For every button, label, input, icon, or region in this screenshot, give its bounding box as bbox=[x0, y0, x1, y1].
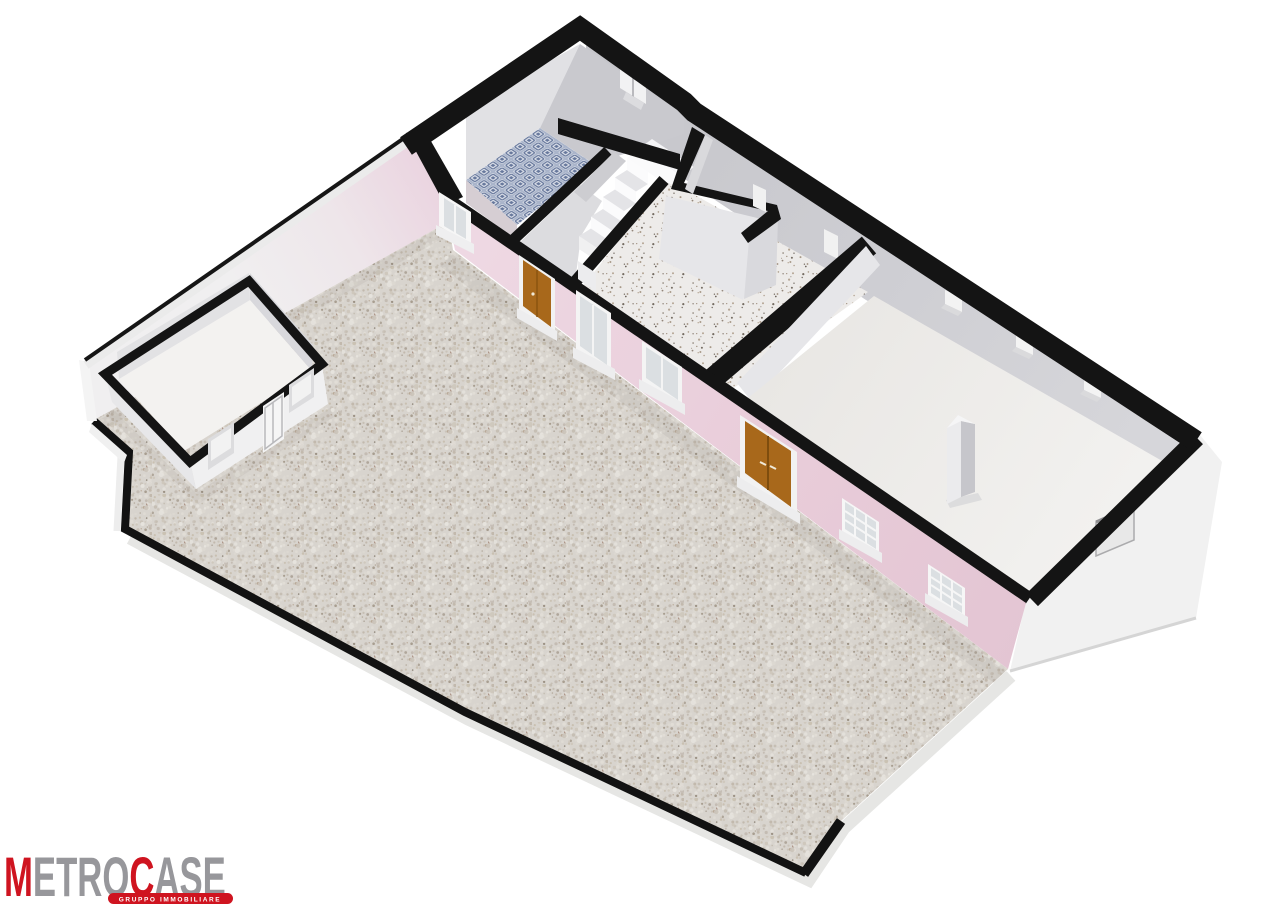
svg-text:GRUPPO IMMOBILIARE: GRUPPO IMMOBILIARE bbox=[119, 897, 221, 904]
